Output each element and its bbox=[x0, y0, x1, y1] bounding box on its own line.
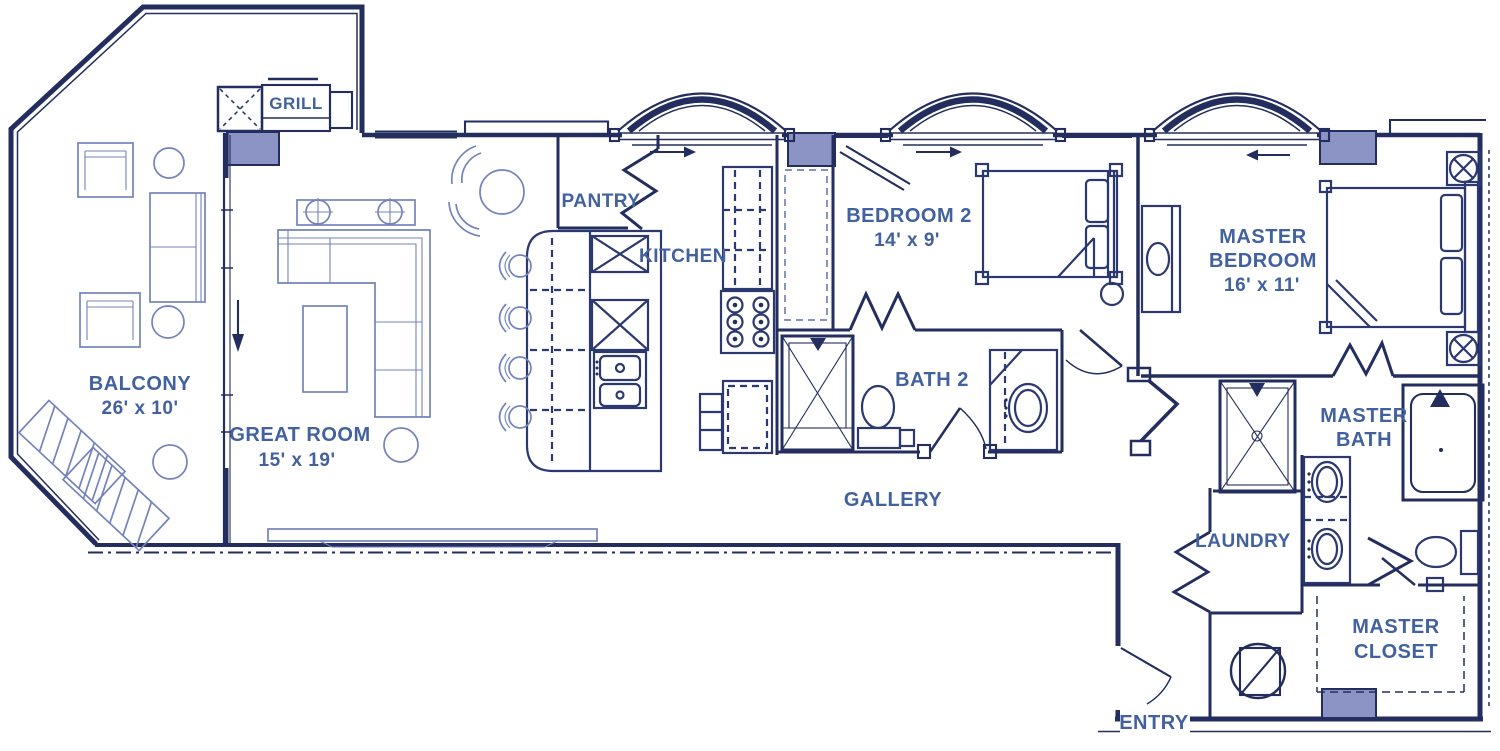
master-closet: MASTER CLOSET bbox=[1302, 558, 1480, 692]
window-mullions bbox=[221, 210, 233, 432]
ceiling-fixture-icon bbox=[1447, 152, 1480, 185]
shower bbox=[1220, 381, 1295, 492]
master-bath-chevron-door bbox=[1141, 380, 1177, 441]
entry-door-gap bbox=[1112, 646, 1124, 710]
blanket-fold bbox=[1058, 238, 1094, 277]
column-master-closet bbox=[1322, 689, 1376, 718]
kitchen-label: KITCHEN bbox=[639, 246, 727, 267]
laundry-label: LAUNDRY bbox=[1195, 531, 1291, 552]
bath2-door bbox=[918, 408, 996, 458]
shower-head-icon bbox=[1249, 383, 1265, 397]
bath2-label: BATH 2 bbox=[895, 369, 969, 391]
master-closet-label-2: CLOSET bbox=[1354, 641, 1438, 663]
pantry-accordion-door bbox=[622, 149, 658, 229]
balcony-dims: 26' x 10' bbox=[102, 398, 179, 419]
bistro-table-set bbox=[449, 146, 524, 236]
side-table bbox=[154, 148, 184, 178]
master-bath-label-1: MASTER bbox=[1320, 405, 1408, 427]
master-bedroom-dims: 16' x 11' bbox=[1224, 275, 1300, 296]
bed bbox=[1320, 181, 1478, 333]
kitchen: KITCHEN bbox=[500, 135, 778, 471]
laundry: LAUNDRY bbox=[1174, 531, 1291, 612]
floor-plan: GRILL BALCONY 26' x 10' bbox=[0, 0, 1500, 751]
kitchen-island bbox=[527, 231, 661, 471]
side-table bbox=[152, 306, 184, 338]
tall-cabinets bbox=[723, 167, 772, 289]
shower bbox=[782, 336, 853, 450]
master-bath-walls bbox=[1210, 455, 1302, 719]
balcony: GRILL BALCONY 26' x 10' bbox=[19, 79, 352, 551]
master-bedroom-label-2: BEDROOM bbox=[1209, 250, 1317, 272]
master-bedroom-label-1: MASTER bbox=[1219, 226, 1307, 248]
grill-station: GRILL bbox=[218, 79, 352, 131]
vanity-sink bbox=[990, 350, 1057, 450]
hall-door-leaf bbox=[1080, 330, 1122, 366]
entry-door-swing bbox=[1147, 677, 1171, 704]
pillow bbox=[1441, 195, 1462, 251]
side-table bbox=[153, 445, 187, 479]
great-room-dims: 15' x 19' bbox=[259, 450, 336, 471]
door-direction-arrow-down-icon bbox=[232, 300, 244, 352]
double-sink bbox=[594, 352, 646, 408]
headboard bbox=[1465, 182, 1478, 332]
great-room: GREAT ROOM 15' x 19' bbox=[229, 146, 597, 547]
grill-label: GRILL bbox=[269, 94, 323, 113]
closet-dashes bbox=[785, 170, 827, 320]
arched-window-icon bbox=[610, 92, 794, 145]
pantry-label: PANTRY bbox=[562, 191, 641, 212]
bathtub bbox=[1403, 385, 1483, 500]
entry-label: ENTRY bbox=[1119, 712, 1189, 734]
gallery: GALLERY bbox=[844, 489, 942, 511]
ceiling-fixture-icon bbox=[1447, 332, 1480, 365]
balcony-label: BALCONY bbox=[89, 373, 192, 395]
master-hall bbox=[1062, 330, 1177, 455]
gallery-label: GALLERY bbox=[844, 489, 942, 511]
floor-plan-drawing: GRILL BALCONY 26' x 10' bbox=[0, 0, 1500, 751]
bedroom2-label: BEDROOM 2 bbox=[846, 205, 972, 227]
nightstand bbox=[1101, 283, 1123, 305]
master-double-door bbox=[1333, 343, 1393, 376]
column-great-room bbox=[227, 132, 279, 165]
toilet bbox=[858, 386, 914, 448]
cooktop bbox=[721, 291, 774, 353]
arched-window-icon bbox=[1145, 92, 1329, 145]
pillow bbox=[1086, 180, 1108, 222]
shower-head-icon bbox=[810, 338, 826, 351]
ottoman bbox=[303, 306, 347, 392]
balcony-furniture bbox=[19, 143, 205, 551]
round-table bbox=[384, 428, 418, 462]
bed bbox=[976, 164, 1122, 284]
utility bbox=[1231, 644, 1285, 698]
entry: ENTRY bbox=[1112, 646, 1190, 734]
pantry: PANTRY bbox=[558, 135, 658, 229]
blanket-fold bbox=[1327, 280, 1377, 327]
closet-mirror-door bbox=[840, 146, 910, 190]
door-jamb bbox=[1131, 441, 1150, 455]
tub-faucet-icon bbox=[1430, 389, 1450, 407]
master-bedroom: MASTER BEDROOM 16' x 11' bbox=[1141, 150, 1480, 377]
dresser bbox=[1142, 206, 1180, 312]
sectional-sofa bbox=[278, 230, 430, 417]
bedroom2-double-door bbox=[850, 294, 915, 330]
grill-side-table bbox=[330, 92, 352, 128]
toilet bbox=[1416, 531, 1478, 591]
master-bath-label-2: BATH bbox=[1336, 429, 1392, 451]
double-vanity bbox=[1304, 457, 1350, 583]
hall-door-swing bbox=[1066, 360, 1122, 374]
console-table bbox=[297, 198, 415, 226]
bedroom2-dims: 14' x 9' bbox=[874, 230, 940, 251]
bedroom-2: BEDROOM 2 14' x 9' bbox=[777, 135, 1138, 376]
great-room-label: GREAT ROOM bbox=[229, 424, 370, 446]
pillow bbox=[1441, 258, 1462, 314]
master-closet-label-1: MASTER bbox=[1352, 616, 1440, 638]
pillow bbox=[1086, 226, 1108, 268]
base-cabinet bbox=[723, 381, 772, 453]
door-direction-arrow-left-icon bbox=[1246, 150, 1290, 161]
arched-window-icon bbox=[881, 92, 1065, 145]
bath-2: BATH 2 bbox=[777, 336, 1062, 458]
door-direction-arrow-right-icon bbox=[916, 147, 962, 158]
kitchen-cart bbox=[700, 394, 722, 450]
entry-door-leaf bbox=[1121, 648, 1171, 677]
